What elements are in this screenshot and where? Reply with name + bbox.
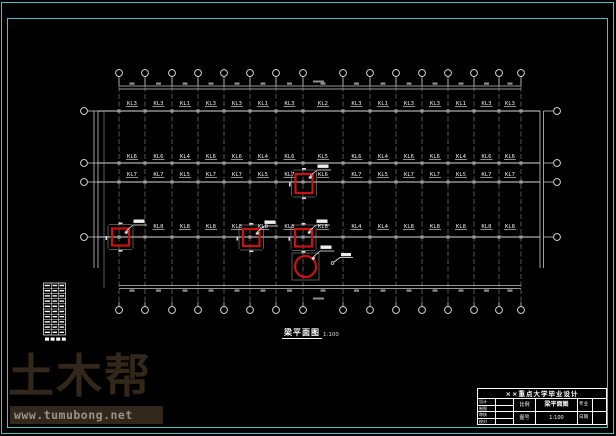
column-node <box>394 109 397 112</box>
column-node <box>394 180 397 183</box>
dim-text <box>302 168 306 170</box>
axis-bubble <box>554 179 561 186</box>
beam-label: KL4 <box>258 154 269 160</box>
tick-mark <box>381 290 386 292</box>
column-node <box>341 180 344 183</box>
tb-label: 专业 <box>578 399 593 411</box>
tick-mark <box>287 290 292 292</box>
column-node <box>170 109 173 112</box>
beam-label: KL3 <box>505 101 515 107</box>
tick-mark <box>156 83 161 85</box>
tick-mark <box>459 83 464 85</box>
column-node <box>420 161 423 164</box>
watermark-brand: 土木帮 <box>8 350 152 402</box>
tick-mark <box>484 83 489 85</box>
beam-label: KL6 <box>154 154 164 160</box>
column-node <box>368 235 371 238</box>
column-node <box>274 180 277 183</box>
tick-mark <box>354 290 359 292</box>
tb-value <box>496 419 513 425</box>
beam-label: KL5 <box>378 172 388 178</box>
beam-label: KL6 <box>482 154 492 160</box>
beam-label: KL6 <box>404 154 414 160</box>
beam-label: KL7 <box>505 172 515 178</box>
legend-footer-text <box>62 338 66 341</box>
column-node <box>519 161 522 164</box>
column-node <box>497 161 500 164</box>
legend-cell-text <box>60 295 65 296</box>
tb-value <box>593 412 607 424</box>
title-block-project-title: ××重点大学毕业设计 <box>478 389 606 399</box>
beam-label: KL3 <box>127 101 137 107</box>
legend-cell-text <box>60 321 65 322</box>
beam-label: KL8 <box>404 224 414 230</box>
tick-mark <box>183 290 188 292</box>
beam-label: KL4 <box>352 224 363 230</box>
legend-cell-text <box>45 300 50 301</box>
column-node <box>341 109 344 112</box>
legend-cell-text <box>45 311 50 312</box>
column-node <box>170 161 173 164</box>
beam-label: KL5 <box>258 172 268 178</box>
beam-label: KL6 <box>430 154 440 160</box>
beam-label: KL8 <box>430 224 440 230</box>
legend-cell-text <box>45 285 50 286</box>
column-node <box>248 235 251 238</box>
title-block: ××重点大学毕业设计 设计 制图 审核 校对 比例 图号 梁平面图 1:100 … <box>477 388 607 425</box>
title-block-signature-grid: 设计 制图 审核 校对 <box>478 399 514 424</box>
axis-bubble <box>340 70 347 77</box>
column-node <box>497 235 500 238</box>
legend-cell-text <box>53 295 58 296</box>
tb-value <box>496 399 513 405</box>
column-node <box>222 161 225 164</box>
leader-text <box>341 253 351 256</box>
beam-label: KL6 <box>232 154 242 160</box>
column-node <box>472 109 475 112</box>
tick-mark <box>209 83 214 85</box>
dim-text <box>119 250 123 252</box>
dimension-text <box>313 81 324 83</box>
tick-mark <box>261 290 266 292</box>
column-node <box>472 235 475 238</box>
legend-cell-text <box>60 290 65 291</box>
column-node <box>394 235 397 238</box>
legend-cell-text <box>60 285 65 286</box>
beam-label: KL8 <box>456 224 466 230</box>
legend-cell-text <box>45 326 50 327</box>
column-node <box>301 109 304 112</box>
legend-cell-text <box>45 306 50 307</box>
beam-label: KL1 <box>378 101 388 107</box>
column-node <box>274 235 277 238</box>
tick-mark <box>209 290 214 292</box>
legend-cell-text <box>53 300 58 301</box>
dim-text <box>302 251 306 253</box>
legend-cell-text <box>45 332 50 333</box>
axis-bubble <box>554 160 561 167</box>
beam-label: KL6 <box>127 154 137 160</box>
axis-bubble <box>419 70 426 77</box>
tick-mark <box>484 290 489 292</box>
column-node <box>519 235 522 238</box>
legend-footer-text <box>45 338 49 341</box>
column-node <box>117 235 120 238</box>
axis-bubble <box>419 307 426 314</box>
beam-label: KL7 <box>127 172 137 178</box>
tb-label: 设计 <box>478 399 496 405</box>
axis-bubble <box>300 307 307 314</box>
column-node <box>248 109 251 112</box>
column-node <box>519 180 522 183</box>
beam-label: KL8 <box>180 224 190 230</box>
title-block-drawing-name: 梁平面图 1:100 <box>536 399 578 424</box>
beam-label: KL1 <box>258 101 268 107</box>
dim-text <box>289 183 291 187</box>
column-node <box>420 109 423 112</box>
tick-mark <box>235 290 240 292</box>
leader-text <box>318 165 329 168</box>
column-node <box>170 180 173 183</box>
column-node <box>394 161 397 164</box>
column-node <box>301 161 304 164</box>
axis-bubble <box>445 70 452 77</box>
leader-text <box>134 220 145 223</box>
axis-bubble <box>81 160 88 167</box>
beam-label: KL6 <box>318 172 328 178</box>
beam-label: KL5 <box>456 172 466 178</box>
legend-cell-text <box>60 332 65 333</box>
axis-bubble <box>221 307 228 314</box>
beam-label: KL6 <box>285 154 295 160</box>
beam-label: KL7 <box>352 172 362 178</box>
column-node <box>143 235 146 238</box>
axis-bubble <box>169 307 176 314</box>
tick-mark <box>130 83 135 85</box>
tick-mark <box>508 83 513 85</box>
axis-bubble <box>142 307 149 314</box>
dim-text <box>302 223 306 225</box>
axis-bubble <box>496 307 503 314</box>
column-node <box>368 161 371 164</box>
beam-label: KL8 <box>154 224 164 230</box>
axis-bubble <box>273 70 280 77</box>
tick-mark <box>321 83 326 85</box>
dimension-text <box>313 298 324 300</box>
title-block-scale-number: 比例 图号 <box>514 399 536 424</box>
beam-label: KL1 <box>180 101 190 107</box>
legend-cell-text <box>60 300 65 301</box>
beam-label: KL3 <box>206 101 216 107</box>
beam-label: KL8 <box>206 224 216 230</box>
axis-bubble <box>445 307 452 314</box>
beam-label: KL3 <box>285 101 295 107</box>
axis-bubble <box>247 307 254 314</box>
beam-label: KL3 <box>404 101 414 107</box>
axis-bubble <box>518 70 525 77</box>
axis-bubble <box>471 307 478 314</box>
leader-line <box>334 258 340 263</box>
column-node <box>248 161 251 164</box>
tb-label: 日期 <box>578 412 593 424</box>
column-node <box>274 161 277 164</box>
column-node <box>196 235 199 238</box>
column-node <box>472 180 475 183</box>
column-node <box>117 161 120 164</box>
axis-bubble <box>300 70 307 77</box>
tb-label: 校对 <box>478 419 496 425</box>
title-block-meta: 专业 日期 <box>578 399 606 424</box>
legend-cell-text <box>53 321 58 322</box>
tick-mark <box>321 290 326 292</box>
beam-label: KL7 <box>232 172 242 178</box>
beam-label: KL1 <box>456 101 466 107</box>
axis-bubble <box>81 234 88 241</box>
axis-bubble <box>496 70 503 77</box>
tb-number-label: 图号 <box>514 412 535 424</box>
axis-bubble <box>195 307 202 314</box>
beam-label: KL5 <box>180 172 190 178</box>
column-node <box>196 109 199 112</box>
column-node <box>143 161 146 164</box>
column-node <box>301 180 304 183</box>
column-node <box>519 109 522 112</box>
tick-mark <box>433 83 438 85</box>
beam-label: KL7 <box>154 172 164 178</box>
tick-mark <box>508 290 513 292</box>
legend-cell-text <box>53 326 58 327</box>
legend-cell-text <box>53 285 58 286</box>
cad-preview-screen: { "app": { "background": "#000000", "fra… <box>0 0 616 436</box>
tick-mark <box>407 83 412 85</box>
beam-label: KL4 <box>378 154 389 160</box>
tick-mark <box>381 83 386 85</box>
tick-mark <box>354 83 359 85</box>
column-node <box>117 109 120 112</box>
axis-bubble <box>554 108 561 115</box>
column-node <box>341 161 344 164</box>
tick-mark <box>261 83 266 85</box>
beam-label: KL7 <box>206 172 216 178</box>
column-node <box>143 180 146 183</box>
column-node <box>196 180 199 183</box>
axis-bubble <box>221 70 228 77</box>
legend-cell-text <box>60 326 65 327</box>
legend-cell-text <box>45 321 50 322</box>
axis-bubble <box>81 179 88 186</box>
leader-text <box>317 220 328 223</box>
beam-label: KL7 <box>404 172 414 178</box>
legend-cell-text <box>60 306 65 307</box>
plan-scale: 1:100 <box>323 332 339 338</box>
legend-footer-text <box>51 338 55 341</box>
column-node <box>368 109 371 112</box>
dim-text <box>289 237 291 241</box>
beam-label: KL3 <box>154 101 164 107</box>
column-node <box>446 161 449 164</box>
beam-label: KL7 <box>285 172 295 178</box>
axis-bubble <box>518 307 525 314</box>
column-node <box>446 235 449 238</box>
legend-cell-text <box>60 316 65 317</box>
leader-text <box>321 246 332 249</box>
column-node <box>420 235 423 238</box>
tb-label: 制图 <box>478 406 496 412</box>
column-node <box>301 235 304 238</box>
beam-label: KL7 <box>430 172 440 178</box>
legend-cell-text <box>53 332 58 333</box>
tb-scale-label: 比例 <box>514 399 535 412</box>
beam-label: KL3 <box>352 101 362 107</box>
axis-bubble <box>367 307 374 314</box>
legend-cell-text <box>53 290 58 291</box>
column-node <box>497 180 500 183</box>
axis-bubble <box>554 234 561 241</box>
tick-mark <box>433 290 438 292</box>
beam-label: KL3 <box>482 101 492 107</box>
legend-cell-text <box>53 306 58 307</box>
leader-dot <box>331 262 334 265</box>
axis-bubble <box>340 307 347 314</box>
column-node <box>446 180 449 183</box>
tb-value <box>593 399 607 411</box>
tick-mark <box>407 290 412 292</box>
column-node <box>143 109 146 112</box>
beam-label: KL5 <box>318 154 328 160</box>
beam-label: KL4 <box>456 154 467 160</box>
tick-mark <box>183 83 188 85</box>
column-node <box>446 109 449 112</box>
beam-label: KL3 <box>232 101 242 107</box>
legend-cell-text <box>45 295 50 296</box>
axis-bubble <box>169 70 176 77</box>
legend-footer-text <box>56 338 60 341</box>
legend-cell-text <box>45 316 50 317</box>
column-node <box>472 161 475 164</box>
column-node <box>196 161 199 164</box>
axis-bubble <box>393 307 400 314</box>
tb-drawing-scale: 1:100 <box>536 412 577 424</box>
column-node <box>222 235 225 238</box>
column-node <box>420 180 423 183</box>
beam-label: KL2 <box>318 101 328 107</box>
leader-text <box>265 221 276 224</box>
beam-label: KL4 <box>180 154 191 160</box>
tick-mark <box>130 290 135 292</box>
dim-text <box>106 236 108 240</box>
beam-label: KL7 <box>482 172 492 178</box>
beam-label: KL4 <box>378 224 389 230</box>
legend-cell-text <box>45 290 50 291</box>
axis-bubble <box>116 307 123 314</box>
tick-mark <box>156 290 161 292</box>
dim-text <box>237 237 239 241</box>
beam-label: KL8 <box>482 224 492 230</box>
beam-label: KL6 <box>352 154 362 160</box>
legend-cell-text <box>53 316 58 317</box>
tb-value <box>496 412 513 418</box>
column-node <box>368 180 371 183</box>
beam-label: KL6 <box>206 154 216 160</box>
axis-bubble <box>81 108 88 115</box>
column-node <box>497 109 500 112</box>
dim-text <box>249 223 253 225</box>
legend-cell-text <box>53 311 58 312</box>
tick-mark <box>235 83 240 85</box>
column-node <box>222 109 225 112</box>
tb-label: 审核 <box>478 412 496 418</box>
tick-mark <box>287 83 292 85</box>
axis-bubble <box>116 70 123 77</box>
column-node <box>170 235 173 238</box>
column-node <box>248 180 251 183</box>
watermark-url: www.tumubong.net <box>10 406 163 424</box>
tb-value <box>496 406 513 412</box>
dim-text <box>302 198 306 200</box>
tb-drawing-name: 梁平面图 <box>536 399 577 412</box>
column-node <box>341 235 344 238</box>
axis-bubble <box>393 70 400 77</box>
axis-bubble <box>142 70 149 77</box>
column-node <box>274 109 277 112</box>
tick-mark <box>459 290 464 292</box>
axis-bubble <box>247 70 254 77</box>
column-node <box>117 180 120 183</box>
axis-bubble <box>195 70 202 77</box>
axis-bubble <box>471 70 478 77</box>
column-node <box>222 180 225 183</box>
dim-text <box>249 251 253 253</box>
dim-text <box>119 223 123 225</box>
beam-label: KL3 <box>430 101 440 107</box>
legend-cell-text <box>60 311 65 312</box>
plan-title: 梁平面图 <box>282 329 322 339</box>
beam-label: KL6 <box>505 154 515 160</box>
axis-bubble <box>273 307 280 314</box>
axis-bubble <box>367 70 374 77</box>
beam-label: KL8 <box>505 224 515 230</box>
